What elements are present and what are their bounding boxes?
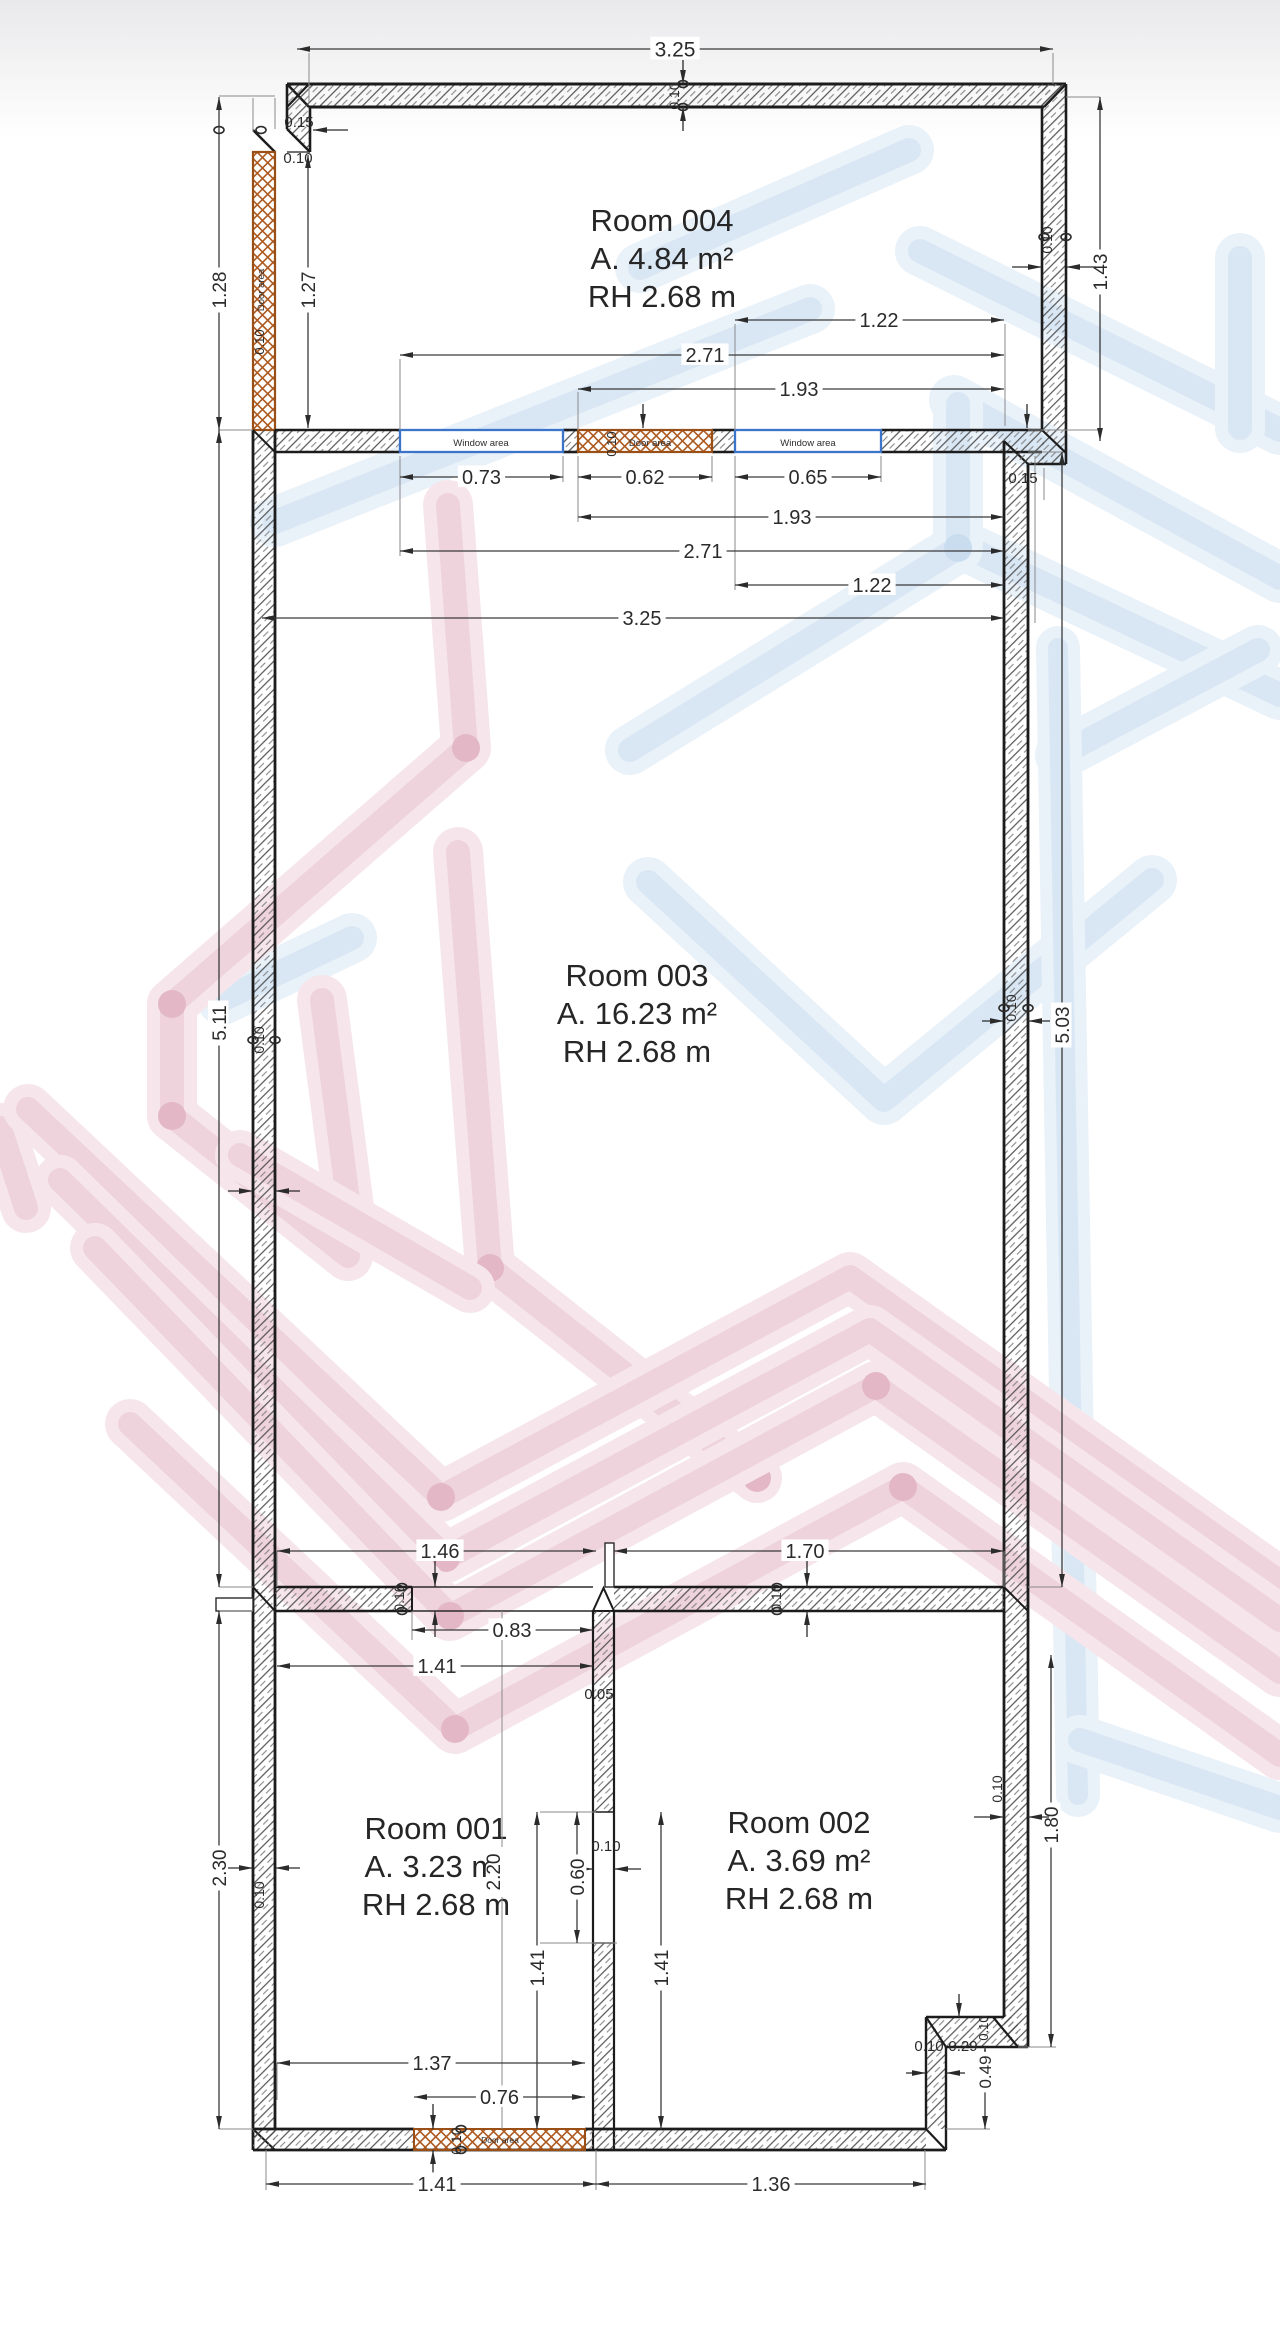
svg-text:Room 002: Room 002 <box>727 1805 870 1840</box>
svg-text:RH 2.68 m: RH 2.68 m <box>362 1887 510 1922</box>
svg-text:0.83: 0.83 <box>493 1620 532 1642</box>
svg-text:Door area: Door area <box>256 268 267 311</box>
svg-text:Room 001: Room 001 <box>364 1811 507 1846</box>
svg-text:1.43: 1.43 <box>1091 254 1112 291</box>
svg-text:Door area: Door area <box>629 438 672 449</box>
svg-text:RH 2.68 m: RH 2.68 m <box>588 279 736 314</box>
svg-text:Room 004: Room 004 <box>590 203 733 238</box>
svg-text:RH 2.68 m: RH 2.68 m <box>563 1034 711 1069</box>
svg-text:2.30: 2.30 <box>210 1850 231 1887</box>
svg-text:0.10: 0.10 <box>252 329 267 354</box>
svg-text:0.15: 0.15 <box>1008 470 1037 487</box>
svg-text:0.29: 0.29 <box>948 2038 977 2055</box>
svg-text:3.25: 3.25 <box>623 608 662 630</box>
svg-text:A. 16.23 m²: A. 16.23 m² <box>557 996 717 1031</box>
svg-text:0.10: 0.10 <box>251 1881 267 1908</box>
svg-text:1.41: 1.41 <box>418 2174 457 2196</box>
svg-text:Room 003: Room 003 <box>565 958 708 993</box>
svg-text:2.71: 2.71 <box>686 345 725 367</box>
svg-text:0.10: 0.10 <box>914 2038 943 2055</box>
svg-text:2.20: 2.20 <box>484 1854 505 1891</box>
svg-text:1.80: 1.80 <box>1042 1807 1063 1844</box>
svg-text:0.60: 0.60 <box>568 1859 589 1896</box>
svg-text:1.27: 1.27 <box>299 272 320 309</box>
svg-text:Window area: Window area <box>780 438 836 449</box>
svg-text:1.41: 1.41 <box>528 1950 549 1987</box>
svg-text:Window area: Window area <box>453 438 509 449</box>
svg-text:0.05: 0.05 <box>584 1686 613 1703</box>
svg-text:1.93: 1.93 <box>780 379 819 401</box>
svg-text:3.25: 3.25 <box>655 39 696 62</box>
svg-text:0.10: 0.10 <box>989 1775 1005 1802</box>
svg-text:0.10: 0.10 <box>976 2015 991 2040</box>
svg-text:1.41: 1.41 <box>652 1950 673 1987</box>
svg-text:0.10: 0.10 <box>251 1026 267 1053</box>
svg-text:0.49: 0.49 <box>976 2055 995 2088</box>
svg-text:1.36: 1.36 <box>752 2174 791 2196</box>
svg-text:1.22: 1.22 <box>860 310 899 332</box>
svg-text:1.22: 1.22 <box>853 575 892 597</box>
svg-text:0.10: 0.10 <box>591 1838 620 1855</box>
svg-text:0.10: 0.10 <box>1003 994 1019 1021</box>
svg-text:RH 2.68 m: RH 2.68 m <box>725 1881 873 1916</box>
svg-text:2.71: 2.71 <box>684 541 723 563</box>
svg-text:1.46: 1.46 <box>421 1541 460 1563</box>
svg-text:A. 3.69 m²: A. 3.69 m² <box>728 1843 871 1878</box>
svg-text:0.62: 0.62 <box>626 467 665 489</box>
svg-text:0.65: 0.65 <box>789 467 828 489</box>
svg-text:1.28: 1.28 <box>210 272 231 309</box>
svg-text:0.10: 0.10 <box>283 150 312 167</box>
svg-text:5.11: 5.11 <box>210 1005 231 1041</box>
svg-text:Door area: Door area <box>481 2135 519 2145</box>
svg-text:0.10: 0.10 <box>604 431 619 456</box>
svg-text:A. 4.84 m²: A. 4.84 m² <box>591 241 734 276</box>
svg-text:0.76: 0.76 <box>480 2087 519 2109</box>
svg-text:5.03: 5.03 <box>1053 1007 1074 1044</box>
svg-text:1.70: 1.70 <box>786 1541 825 1563</box>
svg-text:1.37: 1.37 <box>413 2053 452 2075</box>
svg-text:0.73: 0.73 <box>462 467 501 489</box>
svg-text:1.41: 1.41 <box>418 1656 457 1678</box>
svg-text:1.93: 1.93 <box>773 507 812 529</box>
svg-text:0.15: 0.15 <box>284 114 313 131</box>
